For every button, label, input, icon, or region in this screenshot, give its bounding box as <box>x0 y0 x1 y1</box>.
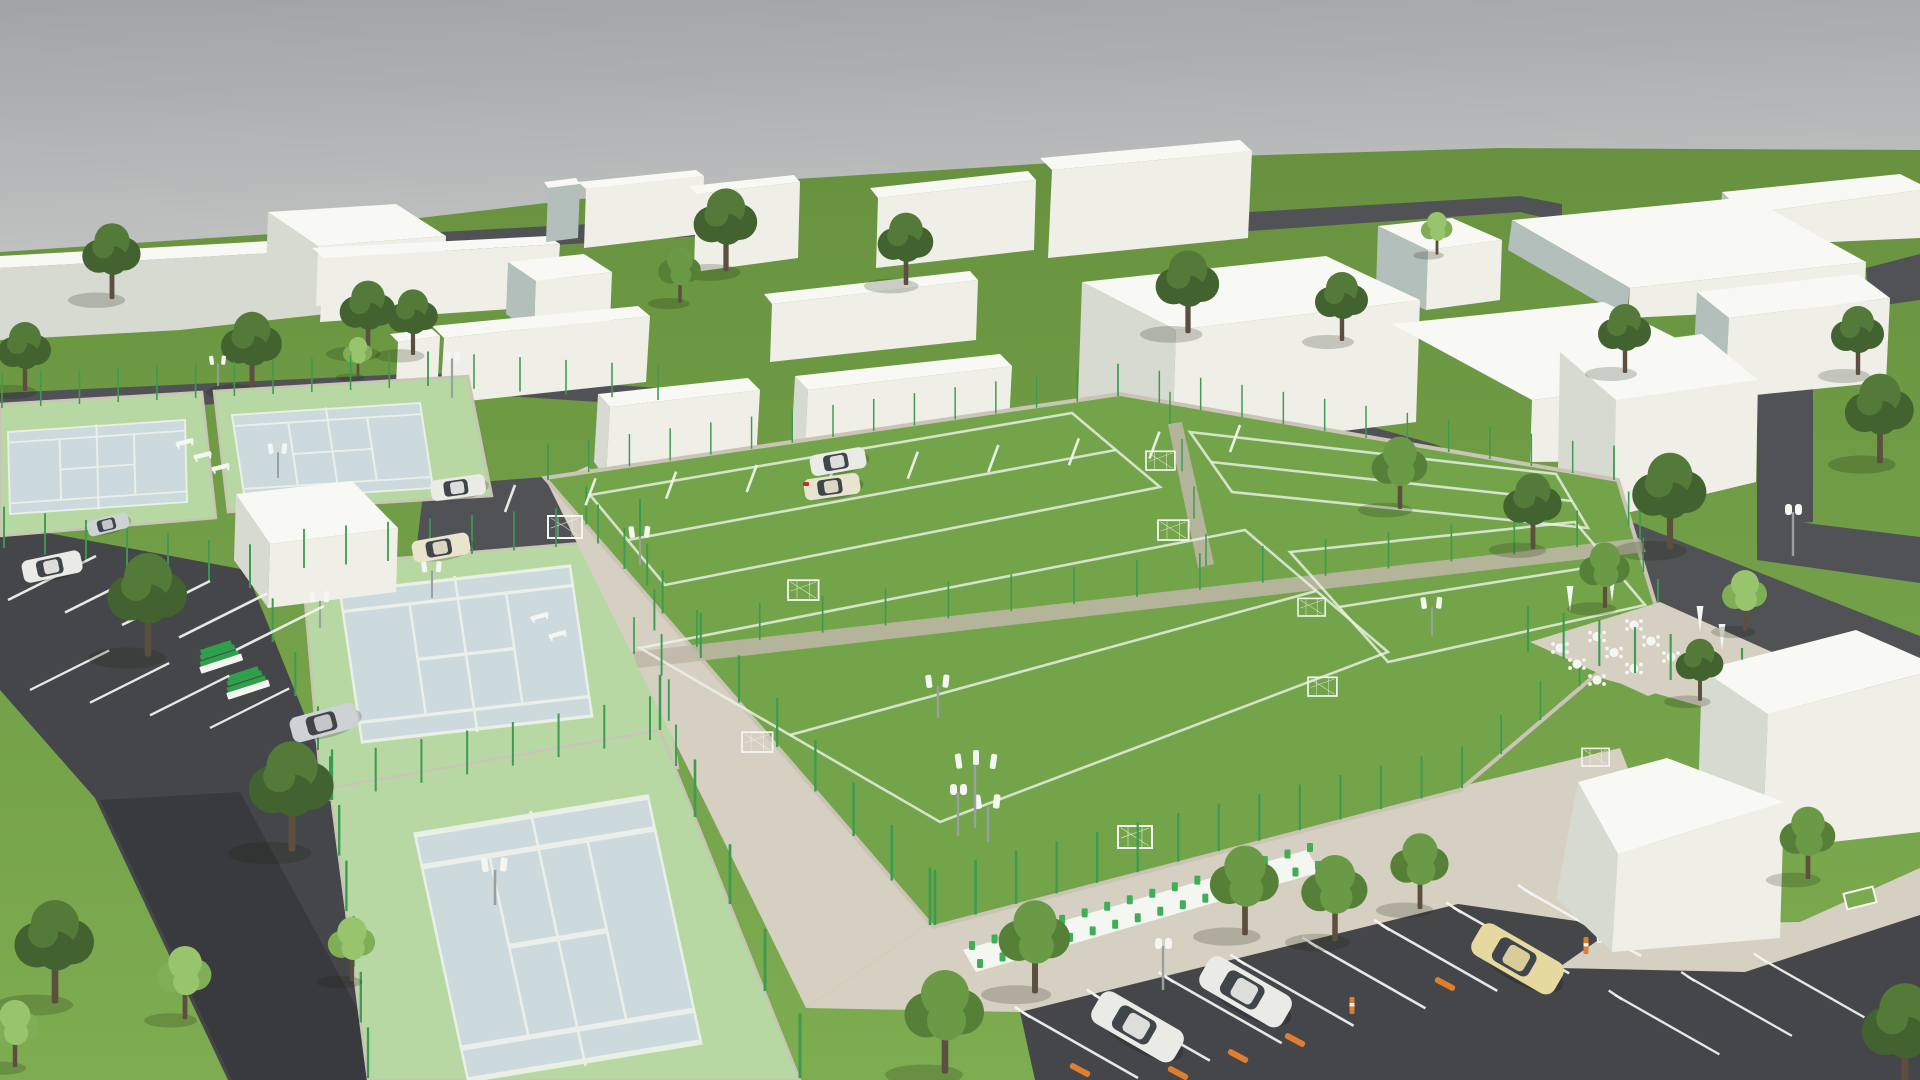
bollard <box>1350 997 1355 1014</box>
seat-item <box>969 941 975 950</box>
building <box>544 178 580 242</box>
seat-item <box>1127 895 1133 904</box>
seat-item <box>1149 889 1155 898</box>
seat-item <box>1307 843 1313 852</box>
bollard <box>1584 937 1589 954</box>
architectural-render <box>0 0 1920 1080</box>
seat-item <box>1180 900 1186 909</box>
seat-item <box>1194 876 1200 885</box>
seat-item <box>1172 882 1178 891</box>
back-lane-1 <box>1757 384 1813 526</box>
scene-canvas <box>0 0 1920 1080</box>
seat-item <box>992 934 998 943</box>
seat-item <box>1104 902 1110 911</box>
seat-item <box>1082 908 1088 917</box>
seat-item <box>977 959 983 968</box>
car-taillight <box>803 482 809 486</box>
seat-item <box>1135 913 1141 922</box>
seat-item <box>1292 868 1298 877</box>
tennis-court-1 <box>8 418 187 515</box>
building <box>1040 140 1252 258</box>
seat-item <box>1112 920 1118 929</box>
seat-item <box>1284 850 1290 859</box>
seat-item <box>1202 894 1208 903</box>
seat-item <box>1157 907 1163 916</box>
seat-item <box>1090 926 1096 935</box>
